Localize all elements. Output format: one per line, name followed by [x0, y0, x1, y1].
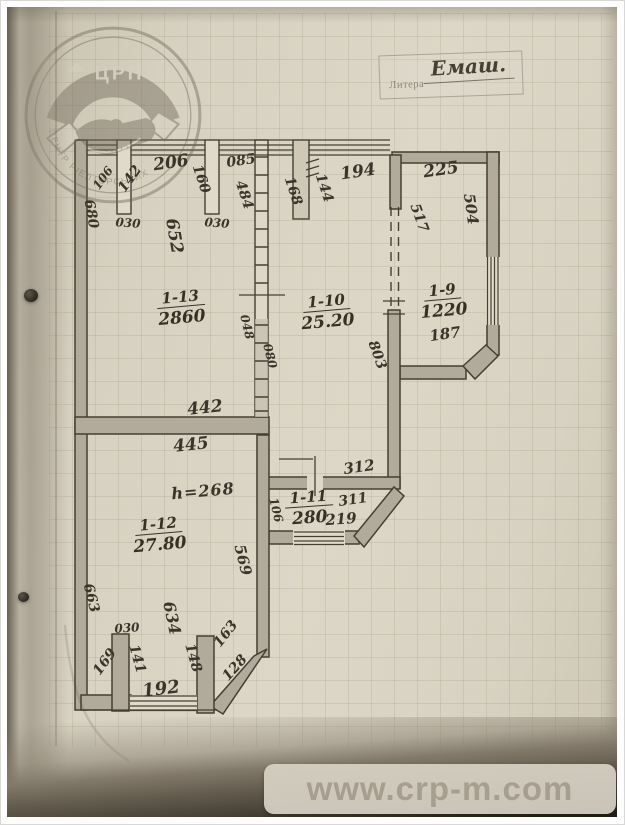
- photo-frame: ЦРП ЦЕНТР РІЕЛТОРСЬКИХ ПОСЛУГ 68010614: [0, 0, 625, 825]
- site-watermark: www.crp-m.com: [264, 764, 616, 814]
- site-watermark-url: www.crp-m.com: [307, 770, 574, 808]
- photo-vignette: [7, 7, 617, 817]
- document-photo: ЦРП ЦЕНТР РІЕЛТОРСЬКИХ ПОСЛУГ 68010614: [7, 7, 617, 817]
